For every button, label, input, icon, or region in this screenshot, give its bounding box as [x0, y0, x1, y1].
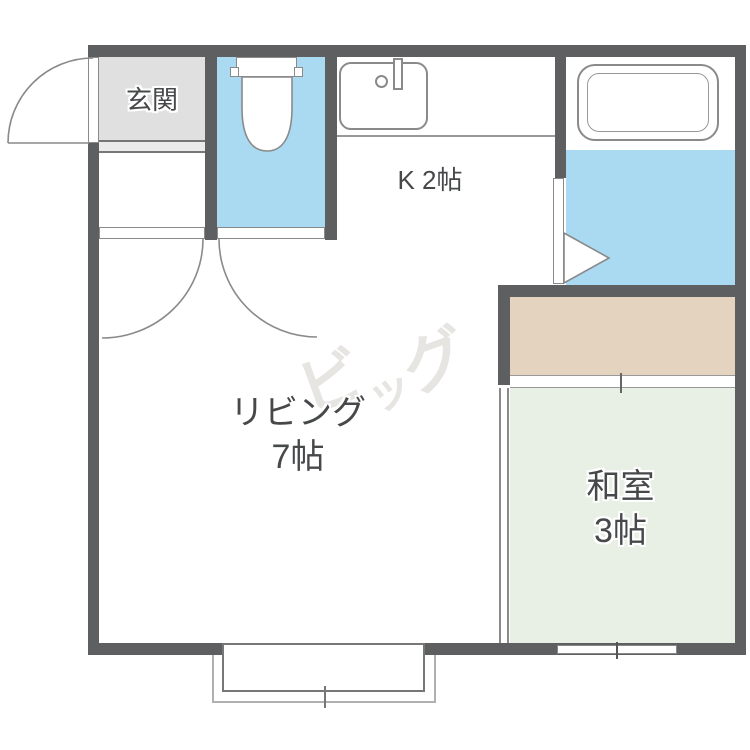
washitsu-label: 和室 3帖	[518, 465, 723, 553]
toilet-floor	[217, 57, 325, 227]
wall-genkan-toilet	[205, 45, 217, 240]
living-label: リビング 7帖	[198, 392, 398, 479]
closet-door-tick	[620, 373, 622, 393]
bathtub-inner-rim	[587, 73, 709, 132]
wall-right	[735, 45, 746, 655]
kitchen-counter-line	[337, 135, 555, 137]
hall-door-swing-icon	[102, 239, 203, 338]
genkan-step	[99, 142, 205, 153]
faucet-handle-icon	[375, 75, 388, 88]
entrance-door-leaf	[88, 57, 99, 143]
toilet-tank-notch-left	[230, 67, 239, 77]
toilet-tank	[236, 57, 297, 77]
partition-line-left	[499, 388, 501, 643]
partition-line-right	[507, 388, 509, 643]
toilet-door-swing-icon	[219, 239, 317, 337]
living-label-line2: 7帖	[198, 436, 398, 480]
washitsu-label-line1: 和室	[518, 465, 723, 509]
washitsu-window-tick	[616, 642, 618, 659]
floor-plan: ビ ッ グ 玄関 K 2帖 リビング 7帖 和室 3帖	[0, 0, 750, 750]
closet-floor	[510, 297, 735, 375]
toilet-doorway	[217, 227, 325, 239]
living-label-line1: リビング	[198, 392, 398, 436]
wall-top	[88, 45, 746, 57]
faucet-pipe-icon	[393, 58, 403, 90]
wall-living-closet	[498, 285, 510, 385]
living-window-tick	[324, 686, 326, 708]
kitchen-label: K 2帖	[355, 160, 505, 197]
closet-sliding-door	[510, 375, 735, 388]
entrance-door-swing-icon	[8, 58, 93, 143]
toilet-tank-notch-right	[294, 67, 303, 77]
washitsu-label-line2: 3帖	[518, 509, 723, 553]
bath-door-leaf	[553, 178, 564, 284]
wall-toilet-kitchen	[325, 45, 337, 240]
hall-doorway	[99, 227, 205, 239]
wall-bath-closet	[498, 285, 746, 297]
living-window	[222, 643, 425, 692]
genkan-label: 玄関	[99, 80, 205, 117]
kitchen-sink-icon	[339, 62, 428, 130]
wall-kitchen-bath	[555, 45, 566, 178]
bathroom-floor	[566, 150, 735, 285]
